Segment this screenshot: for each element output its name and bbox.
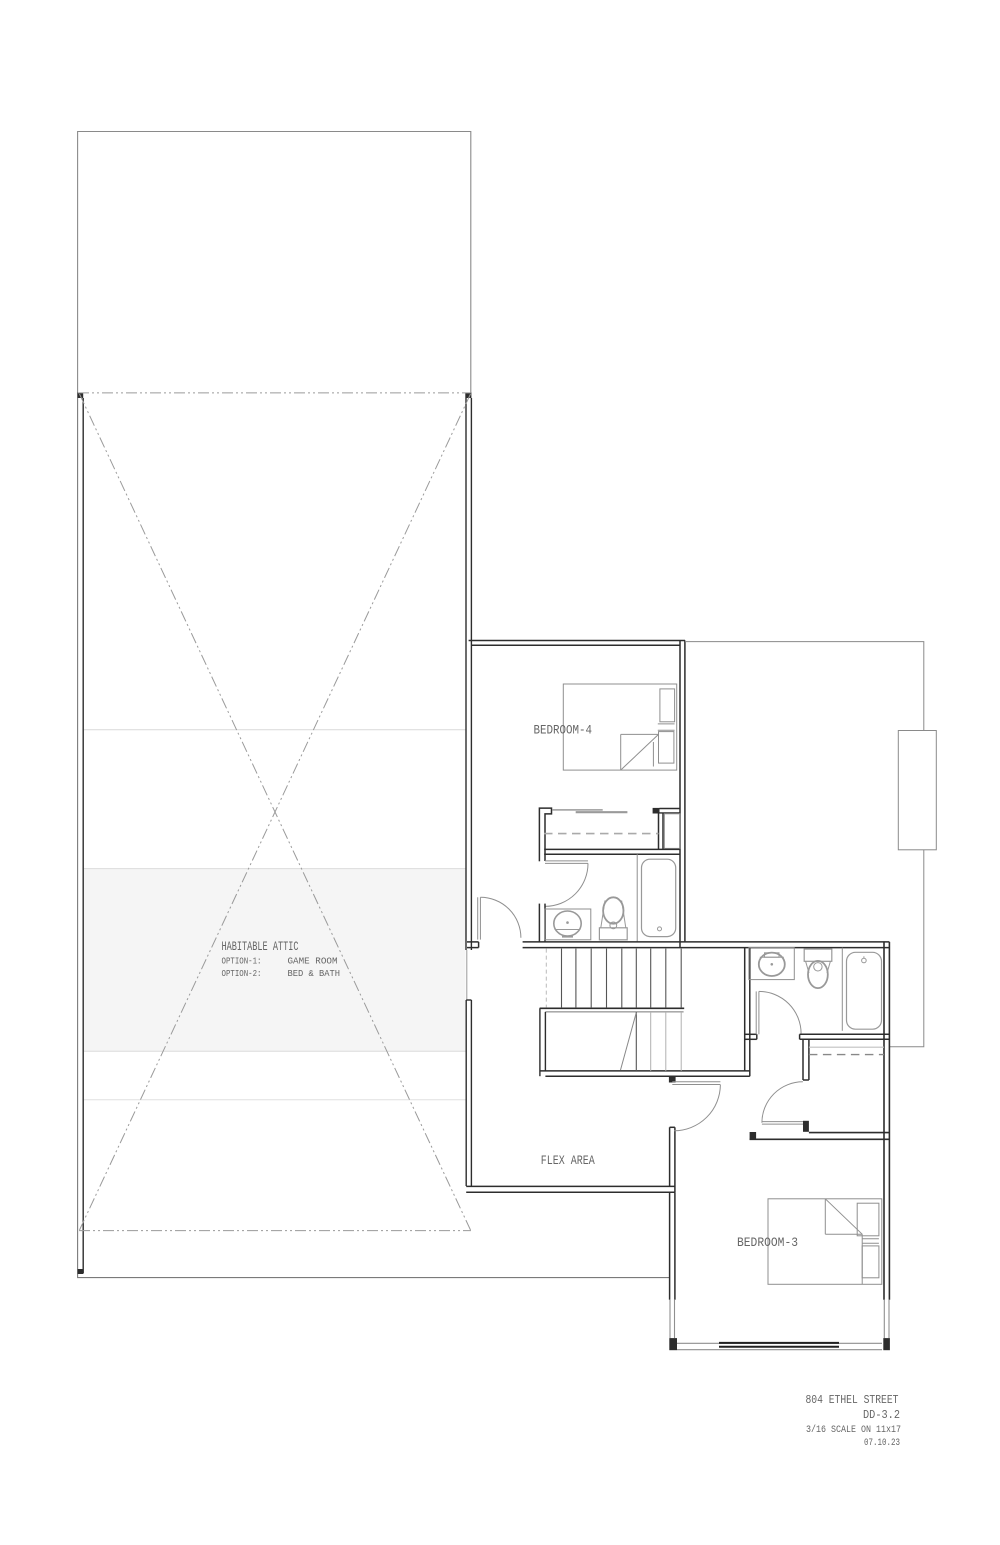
- svg-text:3/16 SCALE ON 11x17: 3/16 SCALE ON 11x17: [806, 1424, 901, 1436]
- svg-text:HABITABLE ATTIC: HABITABLE ATTIC: [222, 939, 299, 954]
- svg-text:BEDROOM-4: BEDROOM-4: [534, 722, 593, 737]
- svg-text:07.10.23: 07.10.23: [864, 1438, 900, 1449]
- svg-text:OPTION-1:: OPTION-1:: [222, 956, 262, 967]
- svg-text:BEDROOM-3: BEDROOM-3: [737, 1235, 798, 1250]
- svg-text:OPTION-2:: OPTION-2:: [222, 968, 262, 979]
- svg-text:BED & BATH: BED & BATH: [288, 968, 341, 979]
- svg-text:804 ETHEL STREET: 804 ETHEL STREET: [806, 1394, 899, 1407]
- svg-text:GAME ROOM: GAME ROOM: [288, 956, 338, 967]
- svg-text:FLEX AREA: FLEX AREA: [541, 1153, 595, 1168]
- svg-text:DD-3.2: DD-3.2: [863, 1409, 900, 1422]
